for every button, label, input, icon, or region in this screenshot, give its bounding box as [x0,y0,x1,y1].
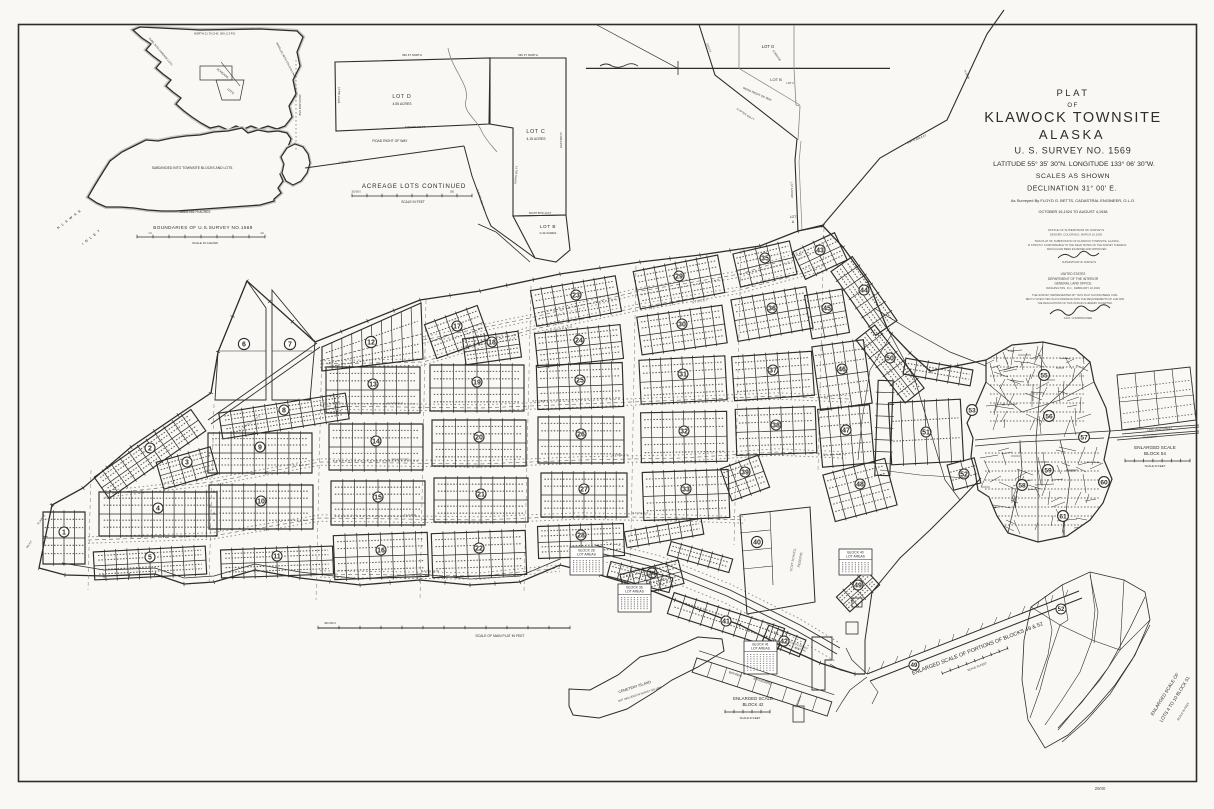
svg-text:OCTOBER 16,1924 TO AUGUST 4,: OCTOBER 16,1924 TO AUGUST 4,1938 [1039,210,1108,214]
svg-text:56: 56 [1045,413,1053,420]
svg-text:44: 44 [860,287,868,294]
svg-text:100 50 0: 100 50 0 [351,191,361,194]
svg-text:As Surveyed By FLOYD G. BETT: As Surveyed By FLOYD G. BETTS, CADASTRAL… [1011,198,1135,203]
svg-text:3: 3 [185,459,189,466]
svg-text:59: 59 [1044,467,1052,474]
svg-text:57: 57 [1080,434,1088,441]
svg-text:26: 26 [577,431,585,438]
svg-text:50: 50 [886,355,894,362]
svg-text:16: 16 [377,547,385,554]
svg-text:OFFICE OF SUPERVISOR OF SURVEY: OFFICE OF SUPERVISOR OF SURVEYS [1048,228,1105,232]
svg-text:LOT G: LOT G [762,44,775,49]
svg-text:SCALE IN FEET: SCALE IN FEET [740,716,761,720]
svg-text:SOUTH 89°W 4.9 FT: SOUTH 89°W 4.9 FT [529,212,552,215]
svg-text:24: 24 [575,337,583,344]
svg-text:32: 32 [680,428,688,435]
svg-text:ALASKA: ALASKA [1039,127,1105,142]
svg-text:58: 58 [1018,482,1026,489]
svg-text:49: 49 [854,582,862,589]
svg-text:ASST. COMMISSIONER: ASST. COMMISSIONER [1064,316,1093,320]
svg-text:4: 4 [156,505,160,512]
svg-text:UNITED STATES: UNITED STATES [1061,272,1086,276]
svg-text:KLAWOCK TOWNSITE: KLAWOCK TOWNSITE [984,110,1162,126]
svg-text:U. S. SURVEY NO. 1569: U. S. SURVEY NO. 1569 [1014,146,1131,156]
svg-text:10: 10 [257,498,265,505]
svg-text:LOT B: LOT B [540,224,556,229]
svg-text:8: 8 [282,407,286,414]
svg-text:7: 7 [288,341,292,348]
svg-text:39: 39 [741,469,749,476]
svg-text:SCALE IN FEET: SCALE IN FEET [401,200,425,204]
svg-text:1: 1 [62,529,66,536]
svg-text:WEST 396 FT: WEST 396 FT [337,86,342,103]
svg-text:51: 51 [922,429,930,436]
svg-text:18: 18 [488,339,496,346]
svg-text:SCALE IN CHAINS: SCALE IN CHAINS [192,241,218,245]
svg-text:28: 28 [577,532,585,539]
svg-text:SCALES AS SHOWN: SCALES AS SHOWN [1036,173,1110,180]
svg-text:45: 45 [823,305,831,312]
svg-text:19: 19 [473,379,481,386]
svg-text:31: 31 [679,371,687,378]
svg-text:60: 60 [1100,479,1108,486]
svg-text:ROAD RIGHT OF WAY: ROAD RIGHT OF WAY [372,139,408,143]
svg-text:660 FT NORTH: 660 FT NORTH [402,53,421,57]
svg-text:37: 37 [769,367,777,374]
svg-text:IS STRICTLY CONFORMABLE TO THE: IS STRICTLY CONFORMABLE TO THE FIELD NOT… [1028,243,1127,247]
svg-text:BOUNDARIES OF U.S.SURVEY N: BOUNDARIES OF U.S.SURVEY NO.1569 [153,225,252,230]
svg-text:PLAT: PLAT [1056,88,1089,99]
svg-text:33: 33 [682,486,690,493]
svg-text:DENVER, COLORADO, MARCH 10,193: DENVER, COLORADO, MARCH 10,1939 [1050,233,1102,237]
svg-text:41: 41 [722,618,730,625]
svg-text:BLOCK 54: BLOCK 54 [1144,451,1166,456]
svg-text:36: 36 [768,305,776,312]
svg-text:LATITUDE 55° 35' 30”N.: LATITUDE 55° 35' 30”N. LONGITUDE 133° 06… [993,160,1155,168]
svg-text:B A Y V I E W: B A Y V I E W [421,569,439,573]
svg-text:DEPARTMENT OF THE INTERIOR: DEPARTMENT OF THE INTERIOR [1048,277,1099,281]
svg-text:660 FT NORTH: 660 FT NORTH [518,53,537,57]
svg-text:9: 9 [258,444,262,451]
svg-text:17: 17 [453,323,461,330]
svg-text:300: 300 [450,191,455,194]
svg-text:43: 43 [816,247,824,254]
svg-text:LOT AREAS: LOT AREAS [625,590,645,594]
svg-text:RECTLY EXECUTED IN ACCORDANCE: RECTLY EXECUTED IN ACCORDANCE WITH THE R… [1026,297,1125,301]
svg-text:14: 14 [372,438,380,445]
svg-text:13: 13 [369,381,377,388]
svg-text:27: 27 [580,486,588,493]
svg-text:SCALE IN FEET: SCALE IN FEET [1145,464,1166,468]
svg-text:12: 12 [367,339,375,346]
svg-text:4.55 ACRES: 4.55 ACRES [392,102,412,106]
svg-text:THE REGULATIONS OF THIS OFFICE: THE REGULATIONS OF THIS OFFICE IS HEREBY… [1037,301,1113,305]
svg-text:15: 15 [374,494,382,501]
svg-text:S T R E E T: S T R E E T [632,511,648,515]
svg-text:OF: OF [1067,103,1078,109]
svg-text:2: 2 [148,445,152,452]
svg-text:LOT AREAS: LOT AREAS [846,555,866,559]
svg-text:LOT A ROAD: LOT A ROAD [790,182,795,198]
svg-text:0.42 ACRES: 0.42 ACRES [540,231,557,235]
svg-text:THE SURVEY REPRESENTED BY THIS: THE SURVEY REPRESENTED BY THIS PLAT HAVI… [1032,293,1118,297]
svg-text:11: 11 [273,553,281,560]
svg-text:5: 5 [148,554,152,561]
svg-text:20: 20 [475,434,483,441]
svg-text:NORTH 21.75 CHS. 36½ 2.3 P.O.: NORTH 21.75 CHS. 36½ 2.3 P.O. [194,32,236,36]
svg-text:30: 30 [678,321,686,328]
svg-text:WHICH HAVE BEEN EXAMINED AND A: WHICH HAVE BEEN EXAMINED AND APPROVED. [1047,247,1107,251]
svg-text:LOT AREAS: LOT AREAS [751,647,771,651]
svg-text:48: 48 [856,481,864,488]
svg-text:35: 35 [761,255,769,262]
svg-text:JACKS ARM LINE: JACKS ARM LINE [298,94,302,115]
svg-text:THIS PLAT OF SUBDIVISION OF KL: THIS PLAT OF SUBDIVISION OF KLAWOCK TOWN… [1034,239,1119,243]
svg-text:ACREAGE LOTS CONTINUED: ACREAGE LOTS CONTINUED [362,183,466,190]
svg-text:DECLINATION 31° 00' E.: DECLINATION 31° 00' E. [1027,185,1117,193]
svg-text:ENLARGED SCALE: ENLARGED SCALE [1134,445,1176,450]
svg-text:S E C O N D: S E C O N D [391,457,409,461]
svg-text:47: 47 [842,427,850,434]
svg-text:23: 23 [572,292,580,299]
svg-text:EAST 990 FT: EAST 990 FT [559,132,563,148]
svg-text:GENERAL LAND OFFICE: GENERAL LAND OFFICE [1054,282,1091,286]
svg-text:S.87°30'E 660 FT: S.87°30'E 660 FT [405,125,426,129]
svg-text:21: 21 [477,491,485,498]
svg-text:LOT 3: LOT 3 [786,81,794,85]
svg-text:22: 22 [475,545,483,552]
svg-text:53: 53 [968,407,976,414]
svg-text:ENLARGED SCALE: ENLARGED SCALE [733,696,773,701]
svg-text:BLOCK 42: BLOCK 42 [743,702,765,707]
svg-text:46: 46 [838,366,846,373]
svg-text:LOT C: LOT C [526,129,545,135]
svg-text:42: 42 [780,638,788,645]
svg-text:38: 38 [772,422,780,429]
svg-text:25: 25 [576,377,584,384]
svg-text:SCALE OF MAIN PLAT IN FEET: SCALE OF MAIN PLAT IN FEET [475,634,524,638]
svg-text:SUPERVISOR OF SURVEYS: SUPERVISOR OF SURVEYS [1062,260,1097,264]
svg-text:AREA 142.70 ACRES: AREA 142.70 ACRES [180,210,211,214]
svg-text:29⁄30: 29⁄30 [1095,786,1106,791]
svg-text:40: 40 [753,539,761,546]
svg-text:52: 52 [1058,607,1065,613]
svg-text:29: 29 [675,273,683,280]
svg-text:LOT D: LOT D [392,94,411,100]
svg-text:6: 6 [242,341,246,348]
svg-text:LOT B: LOT B [770,77,782,82]
svg-text:LOT AREAS: LOT AREAS [577,553,597,557]
svg-text:4.15 ACRES: 4.15 ACRES [526,137,546,141]
svg-text:S T R E E T: S T R E E T [532,399,548,403]
svg-text:LOT: LOT [790,215,797,219]
svg-text:S U M M I T: S U M M I T [387,401,403,405]
svg-text:400 200 0: 400 200 0 [324,621,336,625]
svg-text:61: 61 [1059,513,1067,520]
svg-text:SUBDIVIDED INTO TOWNSITE BL: SUBDIVIDED INTO TOWNSITE BLOCKS AND LOTS [152,166,234,170]
svg-text:WASHINGTON, D.C., FEBRUARY 10,: WASHINGTON, D.C., FEBRUARY 10,1940 [1046,286,1100,290]
svg-text:55: 55 [1040,372,1048,379]
